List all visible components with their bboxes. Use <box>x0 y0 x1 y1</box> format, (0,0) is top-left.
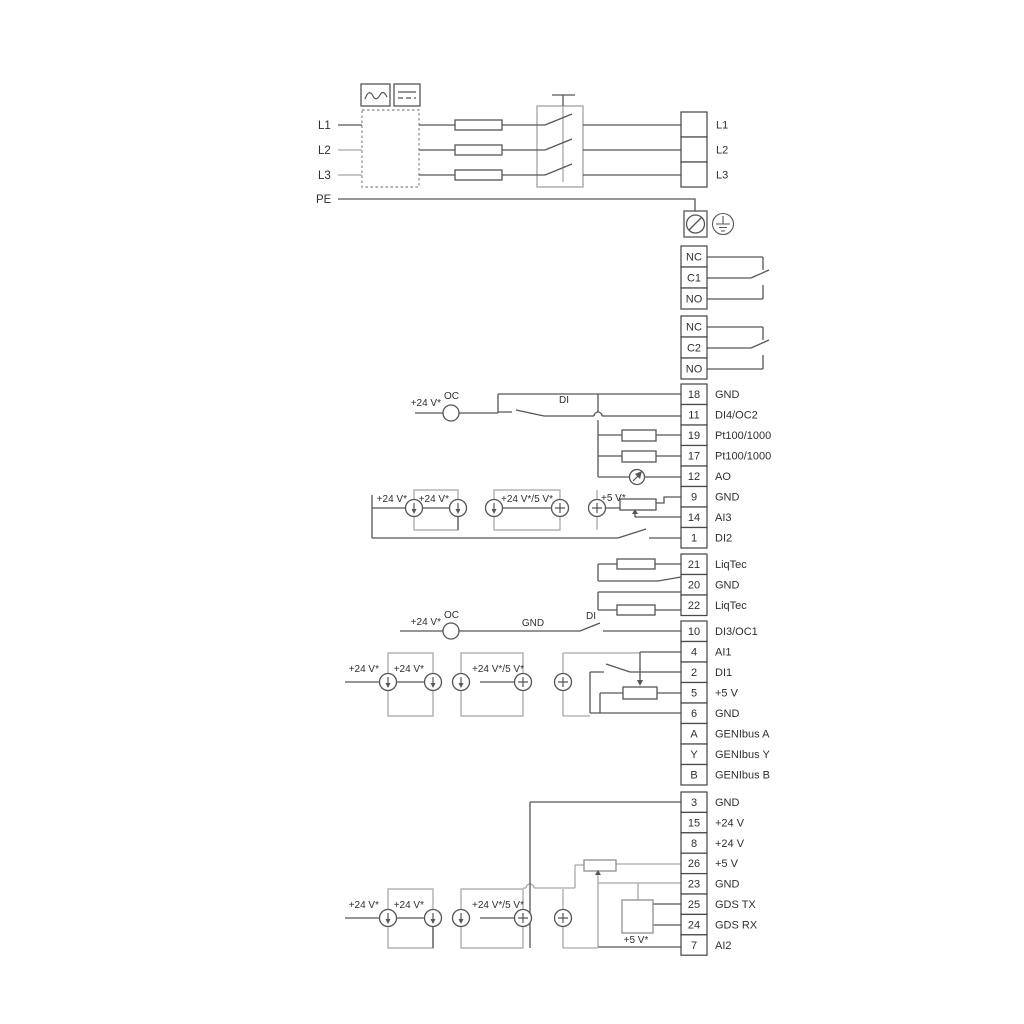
current-source-icon <box>486 500 503 517</box>
mains-terminal-row: L2 <box>681 137 728 162</box>
terminal-label: GND <box>715 389 740 401</box>
terminal-row: 20GND <box>681 575 740 596</box>
terminal-row: 8+24 V <box>681 833 745 853</box>
terminal-label: AO <box>715 471 731 483</box>
mains-input-label: PE <box>316 194 332 206</box>
terminal-row: 10DI3/OC1 <box>681 621 758 642</box>
terminal-row: 6GND <box>681 703 740 724</box>
voltage-source-icon <box>515 910 532 927</box>
mains-terminal-row: L3 <box>681 162 728 187</box>
resistor <box>622 430 656 462</box>
terminal-number: 19 <box>688 430 700 442</box>
open-collector-icon <box>443 405 459 639</box>
terminal-label: DI1 <box>715 667 732 679</box>
filter-box <box>362 110 419 187</box>
oc-label: OC <box>444 391 459 402</box>
relay1-terminal-row: NC <box>681 246 707 267</box>
current-source-icon <box>453 674 470 691</box>
terminal-label: +24 V <box>715 817 745 829</box>
voltage-source-icon <box>515 674 532 691</box>
supply-label: +24 V* <box>377 494 407 505</box>
mains-input-label: L1 <box>318 120 331 132</box>
terminal-label: DI3/OC1 <box>715 626 758 638</box>
terminal-number: 11 <box>688 410 699 422</box>
oc-label: OC <box>444 610 459 621</box>
terminal-row: 19Pt100/1000 <box>681 425 771 446</box>
terminal-label: DI4/OC2 <box>715 410 758 422</box>
terminal-number: Y <box>690 749 698 761</box>
supply-label: +5 V* <box>624 935 649 946</box>
terminal-label: +5 V <box>715 688 739 700</box>
terminal-row: AGENIbus A <box>681 724 770 745</box>
current-source-icon <box>380 674 397 691</box>
terminal-label: AI2 <box>715 940 732 952</box>
terminal-label: AI3 <box>715 512 732 524</box>
terminal-row: 4AI1 <box>681 642 732 663</box>
terminal-label: DI2 <box>715 533 732 545</box>
terminal-label: C1 <box>687 272 701 284</box>
terminal-number: 10 <box>688 626 700 638</box>
terminal-number: B <box>690 770 697 782</box>
terminal-row: 12AO <box>681 466 731 487</box>
supply-label: +24 V* <box>349 900 379 911</box>
terminal-row: 14AI3 <box>681 507 732 528</box>
terminal-label: NC <box>686 251 702 263</box>
terminal-number: 20 <box>688 580 700 592</box>
terminal-label: LiqTec <box>715 600 747 612</box>
terminal-number: 1 <box>691 533 697 545</box>
terminal-number: 26 <box>688 858 700 870</box>
supply-label: +24 V* <box>411 398 441 409</box>
voltage-source-icon <box>552 500 569 517</box>
wiring-diagram: L1L2L3NCC1NONCC2NO18GND11DI4/OC219Pt100/… <box>0 0 1024 1024</box>
terminal-row: 23GND <box>681 874 740 894</box>
relay2-terminal-row: NO <box>681 358 707 379</box>
current-source-icon <box>450 500 467 517</box>
supply-label: +24 V* <box>411 617 441 628</box>
terminal-number: 18 <box>688 389 700 401</box>
terminal-number: A <box>690 729 698 741</box>
terminal-number: 9 <box>691 492 697 504</box>
terminal-label: NC <box>686 321 702 333</box>
terminal-row: 9GND <box>681 487 740 508</box>
mains-input-label: L3 <box>318 170 331 182</box>
terminal-label: +24 V <box>715 838 745 850</box>
ac-symbol-icon <box>361 84 390 106</box>
terminal-number: 5 <box>691 688 697 700</box>
supply-label: +24 V* <box>349 664 379 675</box>
supply-label: +24 V*/5 V* <box>472 664 524 675</box>
terminal-row: 25GDS TX <box>681 894 756 914</box>
terminal-number: 3 <box>691 797 697 809</box>
supply-label: +24 V* <box>419 494 449 505</box>
supply-label: +24 V*/5 V* <box>501 494 553 505</box>
terminal-row: 26+5 V <box>681 853 739 873</box>
terminal-row: 2DI1 <box>681 662 732 683</box>
current-source-icon <box>453 910 470 927</box>
relay2-terminal-row: NC <box>681 316 707 337</box>
relay1-terminal-row: NO <box>681 288 707 309</box>
current-source-icon <box>380 910 397 927</box>
terminal-label: GDS RX <box>715 919 758 931</box>
relay1-terminal-row: C1 <box>681 267 707 288</box>
terminal-number: 25 <box>688 899 700 911</box>
current-source-icon <box>425 910 442 927</box>
terminal-number: 8 <box>691 838 697 850</box>
terminal-label: GDS TX <box>715 899 756 911</box>
terminal-label: GENIbus Y <box>715 749 770 761</box>
terminal-label: C2 <box>687 342 701 354</box>
terminal-row: 5+5 V <box>681 683 739 704</box>
terminal-row: 21LiqTec <box>681 554 747 575</box>
dc-symbol-icon <box>394 84 420 106</box>
terminal-label: GND <box>715 492 740 504</box>
terminal-label: NO <box>686 363 703 375</box>
potentiometer <box>623 680 657 699</box>
voltage-source-icon <box>555 674 572 691</box>
terminal-label: GND <box>715 879 740 891</box>
screw-terminal-icon <box>684 211 707 237</box>
fuse-icon <box>455 120 502 180</box>
terminal-number: 21 <box>688 559 700 571</box>
gnd-label: GND <box>522 618 544 629</box>
earth-icon <box>713 214 734 235</box>
terminal-label: Pt100/1000 <box>715 430 771 442</box>
gds-sensor-box <box>622 900 653 933</box>
terminal-row: 3GND <box>681 792 740 812</box>
terminal-row: YGENIbus Y <box>681 744 770 765</box>
terminal-label: +5 V <box>715 858 739 870</box>
terminal-number: 14 <box>688 512 700 524</box>
terminal-row: BGENIbus B <box>681 765 770 786</box>
di-label: DI <box>586 611 596 622</box>
voltage-source-icon <box>555 910 572 927</box>
terminal-label: LiqTec <box>715 559 747 571</box>
terminal-number: 22 <box>688 600 700 612</box>
supply-label: +24 V* <box>394 900 424 911</box>
terminal-label: GENIbus B <box>715 770 770 782</box>
relay2-terminal-row: C2 <box>681 337 707 358</box>
mains-input-label: L2 <box>318 145 331 157</box>
terminal-number: 6 <box>691 708 697 720</box>
resistor <box>617 559 655 615</box>
terminal-label: Pt100/1000 <box>715 451 771 463</box>
terminal-number: 4 <box>691 647 697 659</box>
terminal-label: GND <box>715 708 740 720</box>
terminal-number: 2 <box>691 667 697 679</box>
terminal-row: 24GDS RX <box>681 914 758 934</box>
terminal-number: 12 <box>688 471 700 483</box>
terminal-number: 23 <box>688 879 700 891</box>
current-source-icon <box>425 674 442 691</box>
terminal-row: 17Pt100/1000 <box>681 446 771 467</box>
mains-terminal-row: L1 <box>681 112 728 137</box>
terminal-row: 18GND <box>681 384 740 405</box>
terminal-label: L1 <box>716 119 728 131</box>
terminal-label: GND <box>715 580 740 592</box>
supply-label: +24 V* <box>394 664 424 675</box>
terminal-label: GND <box>715 797 740 809</box>
terminal-row: 22LiqTec <box>681 595 747 616</box>
terminal-label: AI1 <box>715 647 732 659</box>
terminal-row: 1DI2 <box>681 528 732 549</box>
potentiometer <box>584 860 616 875</box>
terminal-label: L3 <box>716 169 728 181</box>
terminal-number: 15 <box>688 817 700 829</box>
ao-meter-icon <box>630 470 645 485</box>
terminal-number: 7 <box>691 940 697 952</box>
terminal-row: 11DI4/OC2 <box>681 405 758 426</box>
supply-label: +5 V* <box>601 493 626 504</box>
terminal-row: 15+24 V <box>681 812 745 832</box>
di-label: DI <box>559 395 569 406</box>
terminal-label: GENIbus A <box>715 729 770 741</box>
terminal-number: 17 <box>688 451 700 463</box>
terminal-row: 7AI2 <box>681 935 732 955</box>
terminal-label: L2 <box>716 144 728 156</box>
group-brackets <box>338 106 681 948</box>
terminal-number: 24 <box>688 919 700 931</box>
terminal-label: NO <box>686 293 703 305</box>
supply-label: +24 V*/5 V* <box>472 900 524 911</box>
